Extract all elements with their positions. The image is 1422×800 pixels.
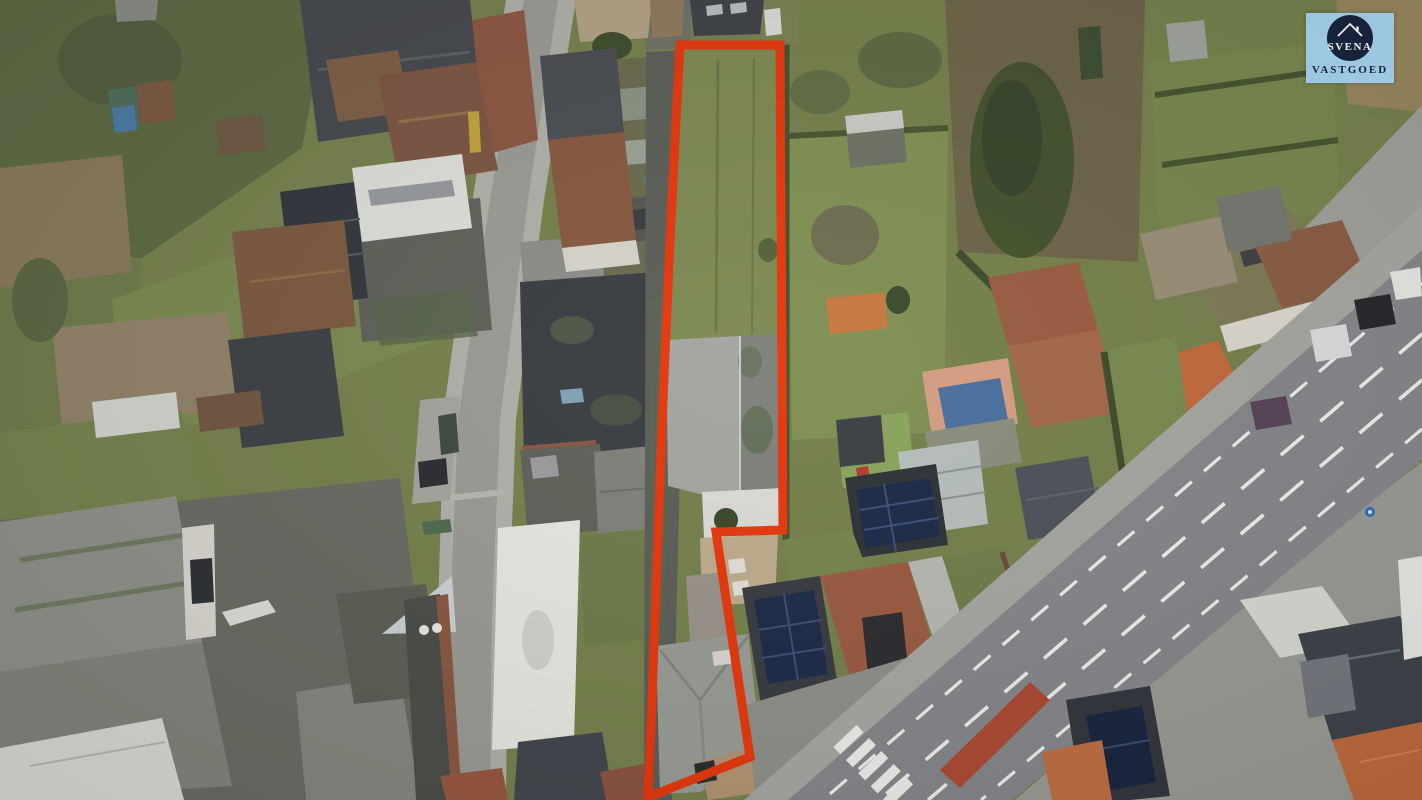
scrub-ne-2 xyxy=(790,70,850,114)
ac-unit-2 xyxy=(432,623,442,633)
aerial-scene-canvas xyxy=(0,0,1422,800)
solar-panels-east xyxy=(856,478,940,548)
scrub-ne-1 xyxy=(858,32,942,88)
tan-roof-top-center-2 xyxy=(650,0,684,38)
skylight-2 xyxy=(730,2,747,14)
long-roof-moss-1 xyxy=(741,406,773,454)
car-purple-parked xyxy=(1250,396,1292,430)
courtyard-mat-1 xyxy=(728,558,746,574)
roof-top-center-dark xyxy=(690,0,764,36)
redzone-bush xyxy=(758,238,778,262)
dark-roof-sw xyxy=(228,328,344,448)
garden-s-barn xyxy=(580,530,652,645)
gray-bldg-tr xyxy=(1216,186,1292,252)
car-green-street xyxy=(438,413,459,455)
barn-moss-1 xyxy=(550,316,594,344)
courtyard-west-moss xyxy=(372,290,478,346)
shed-ne-gray xyxy=(1166,20,1208,62)
dark-roof-s1 xyxy=(514,732,614,800)
lawn-east-bright xyxy=(788,128,948,440)
house-e-rust-roof xyxy=(548,132,636,248)
skylight-1 xyxy=(706,4,723,16)
logo-brand-text: SVENA xyxy=(1328,41,1373,53)
aerial-photo: SVENA VASTGOED xyxy=(0,0,1422,800)
shed-green-east xyxy=(1078,26,1103,80)
tile-house-sw xyxy=(232,220,356,338)
conifer-tree-core xyxy=(982,80,1042,196)
tower-dark-stripe xyxy=(190,558,214,604)
logo-emblem-circle: SVENA xyxy=(1327,15,1373,61)
car-black-parked xyxy=(1354,294,1396,330)
ac-unit-1 xyxy=(419,625,429,635)
long-roof-west-slope xyxy=(666,336,740,494)
shed-left-3 xyxy=(215,114,266,156)
long-roof-moss-2 xyxy=(738,346,762,378)
playshed-roof xyxy=(836,415,885,467)
grass-path-1 xyxy=(716,60,718,332)
yellow-post xyxy=(468,111,481,153)
car-barn xyxy=(530,455,559,479)
soil-plot-1 xyxy=(0,155,132,288)
bare-tree-east xyxy=(811,205,879,265)
barn-skylight xyxy=(560,388,584,404)
house-e-dark-roof xyxy=(540,48,624,140)
logo-subtitle-text: VASTGOED xyxy=(1312,64,1388,76)
blue-tarp-left xyxy=(112,105,137,133)
pickup-white-parked xyxy=(1310,324,1352,362)
logo-house-roof-icon xyxy=(1327,15,1373,61)
bush-patio xyxy=(886,286,910,314)
shed-gray-top xyxy=(115,0,158,22)
road-sign-core xyxy=(1368,510,1372,514)
patio-orange xyxy=(826,292,888,334)
barn-moss-2 xyxy=(590,394,642,426)
redzone-grass xyxy=(668,46,782,342)
car-white-top xyxy=(764,8,782,36)
shed-left-2 xyxy=(136,80,176,124)
white-bldg-stain xyxy=(522,610,554,670)
brand-logo: SVENA VASTGOED xyxy=(1306,13,1394,83)
tree-left-2 xyxy=(12,258,68,342)
car-dark-street-2 xyxy=(418,458,448,488)
car-gray-br xyxy=(1300,654,1356,718)
dark-barn-roof xyxy=(520,272,664,460)
